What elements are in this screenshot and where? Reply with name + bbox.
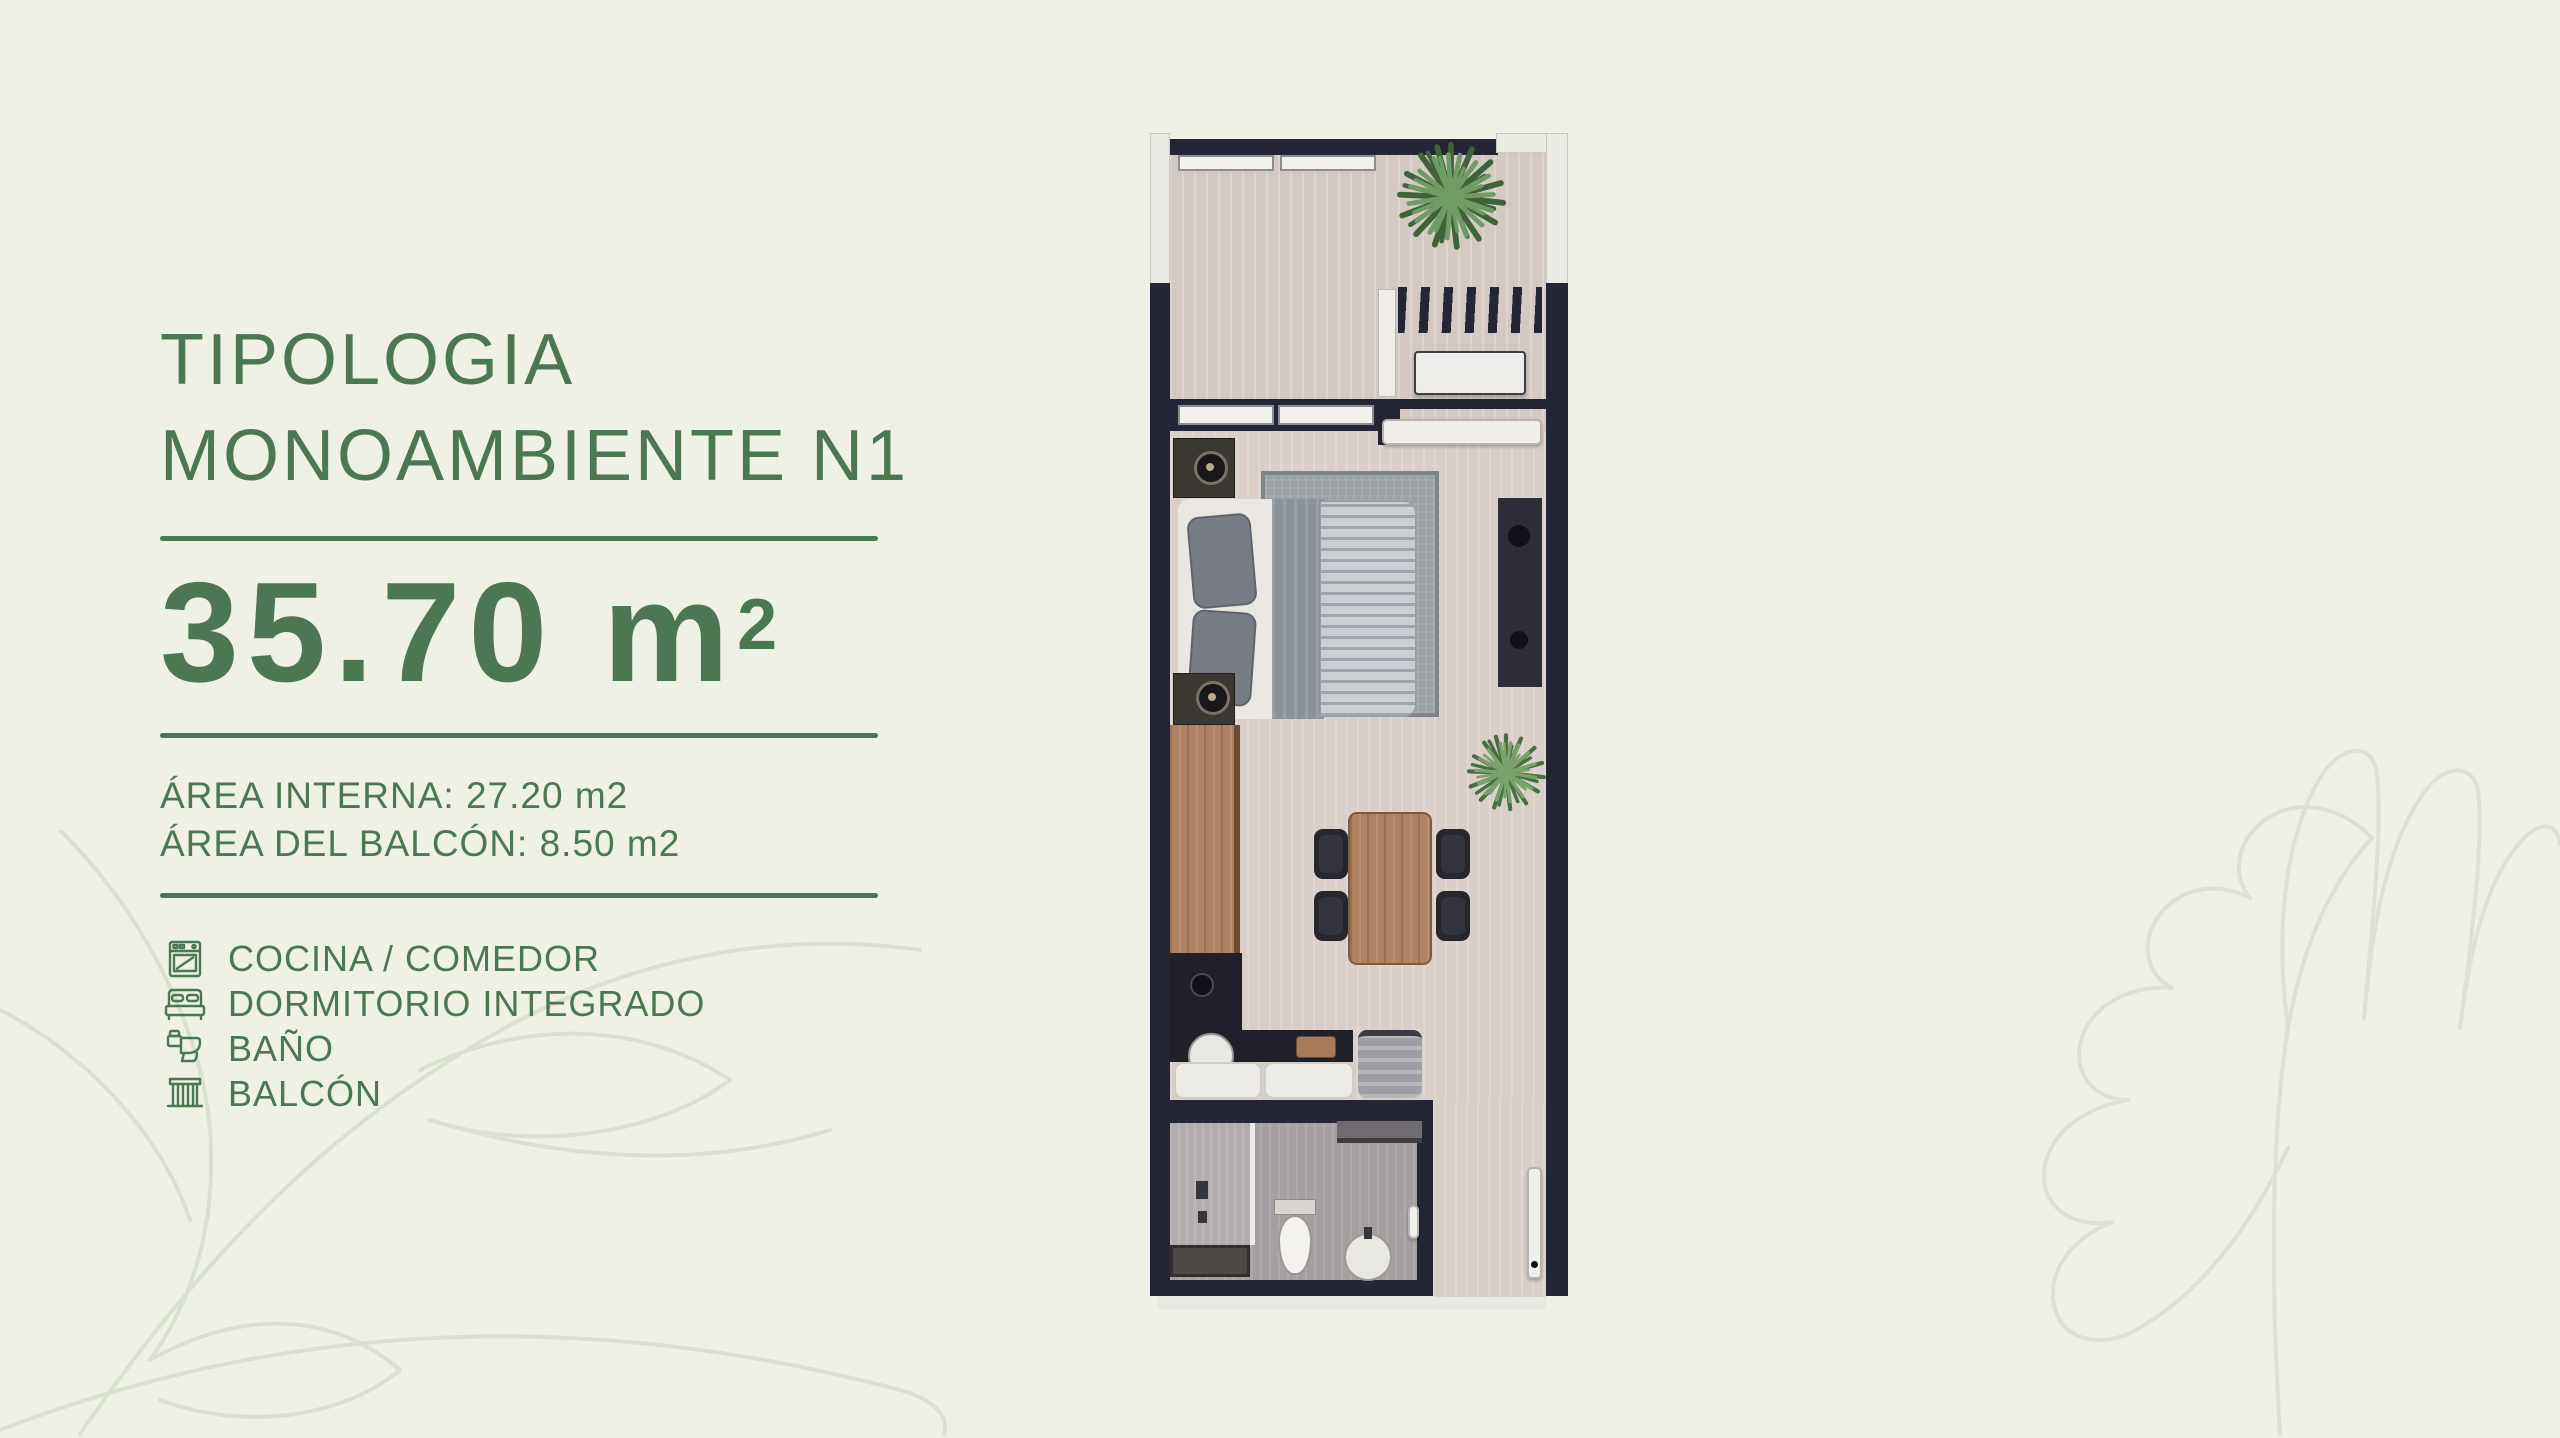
- legend-row-bano: BAÑO: [162, 1026, 705, 1071]
- kitchen-cabinet: [1170, 725, 1240, 953]
- leaf-watermark-left: [0, 830, 1000, 1438]
- divider-line: [160, 536, 878, 541]
- poster: TIPOLOGIA MONOAMBIENTE N1 35.70 m2 ÁREA …: [0, 0, 2560, 1438]
- divider-line: [160, 893, 878, 898]
- bathroom-sink: [1344, 1233, 1392, 1281]
- balcony-rail-window-left: [1178, 155, 1274, 171]
- tv-console-item: [1510, 631, 1528, 649]
- balcony-screen-panel: [1378, 289, 1396, 397]
- lamp-bottom: [1196, 681, 1230, 715]
- left-wall: [1150, 283, 1170, 1296]
- balcony-rail-window-right: [1280, 155, 1376, 171]
- legend-label: BALCÓN: [228, 1073, 382, 1115]
- bed-pillow-1: [1186, 512, 1258, 609]
- bathroom-door: [1408, 1205, 1419, 1239]
- bottom-sill: [1158, 1296, 1430, 1309]
- area-internal: ÁREA INTERNA: 27.20 m2: [160, 772, 680, 820]
- indoor-plant: [1464, 731, 1548, 815]
- title-line-2: MONOAMBIENTE N1: [160, 408, 909, 504]
- tv-console-item: [1508, 525, 1530, 547]
- divider-window-1: [1178, 405, 1274, 425]
- bed-icon: [162, 984, 208, 1024]
- area-details: ÁREA INTERNA: 27.20 m2 ÁREA DEL BALCÓN: …: [160, 772, 680, 868]
- legend: COCINA / COMEDOR DORMITORIO INTEGRADO: [162, 936, 705, 1116]
- toilet-icon: [162, 1029, 208, 1069]
- floorplan: [1150, 133, 1568, 1313]
- dining-chair: [1314, 829, 1348, 879]
- balcony-sliding-door: [1382, 419, 1542, 445]
- shower-drain: [1198, 1211, 1207, 1223]
- total-area: 35.70 m2: [160, 558, 777, 708]
- sink-faucet: [1364, 1227, 1372, 1239]
- total-area-superscript: 2: [737, 585, 777, 665]
- balcony-parapet-right: [1546, 133, 1568, 285]
- hallway-sill: [1428, 1297, 1546, 1310]
- legend-row-dormitorio: DORMITORIO INTEGRADO: [162, 981, 705, 1026]
- dining-chair: [1436, 891, 1470, 941]
- cutting-board: [1296, 1036, 1336, 1058]
- lounge-chair: [1358, 1030, 1422, 1098]
- divider-glass-track: [1400, 399, 1546, 409]
- divider-line: [160, 733, 878, 738]
- shower-niche: [1170, 1245, 1250, 1277]
- legend-row-cocina: COCINA / COMEDOR: [162, 936, 705, 981]
- bathroom-sliding-door: [1337, 1121, 1422, 1143]
- stove-icon: [162, 939, 208, 979]
- sofa-cushion: [1264, 1062, 1354, 1099]
- balcony-parapet-left: [1150, 133, 1170, 285]
- bed-blanket: [1272, 499, 1324, 719]
- total-area-value: 35.70 m: [160, 553, 737, 712]
- shower-valve: [1196, 1181, 1208, 1199]
- legend-row-balcon: BALCÓN: [162, 1071, 705, 1116]
- balcony-slat-screen: [1398, 287, 1542, 333]
- cooktop-burner: [1190, 973, 1214, 997]
- area-balcony: ÁREA DEL BALCÓN: 8.50 m2: [160, 820, 680, 868]
- legend-label: COCINA / COMEDOR: [228, 938, 600, 980]
- bed-duvet: [1320, 501, 1416, 717]
- legend-label: BAÑO: [228, 1028, 334, 1070]
- sofa-cushion: [1174, 1062, 1262, 1099]
- dining-chair: [1314, 891, 1348, 941]
- title-line-1: TIPOLOGIA: [160, 312, 909, 408]
- lamp-top: [1194, 451, 1228, 485]
- dining-chair: [1436, 829, 1470, 879]
- bathroom-top-wall: [1150, 1100, 1433, 1123]
- balcony-icon: [162, 1074, 208, 1114]
- dining-table: [1348, 812, 1432, 965]
- entry-door-handle: [1531, 1261, 1538, 1268]
- leaf-watermark-right: [1920, 628, 2560, 1438]
- shower-glass: [1250, 1123, 1255, 1245]
- toilet-tank: [1274, 1199, 1316, 1215]
- divider-window-2: [1278, 405, 1374, 425]
- right-wall: [1546, 283, 1568, 1296]
- balcony-plant: [1393, 139, 1509, 255]
- legend-label: DORMITORIO INTEGRADO: [228, 983, 705, 1025]
- page-title: TIPOLOGIA MONOAMBIENTE N1: [160, 312, 909, 504]
- balcony-bench: [1414, 351, 1526, 395]
- shower-floor: [1170, 1123, 1252, 1247]
